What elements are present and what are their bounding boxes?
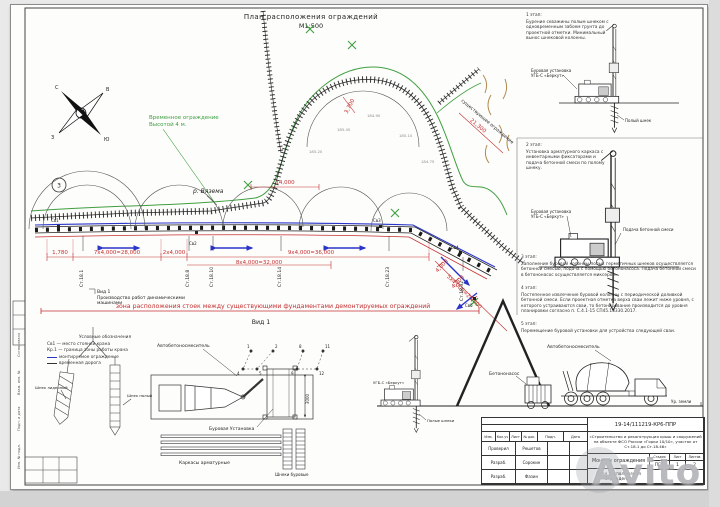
temp-fence-note-line1: Временное ограждение <box>149 115 219 121</box>
compass-north-label: С <box>55 85 59 91</box>
callout-number: 3 <box>57 183 61 190</box>
black-line-symbol <box>47 363 57 364</box>
station-label: Ст.18.32 <box>459 281 465 301</box>
station-label: Ст.18.1 <box>79 270 85 287</box>
compass-west-label: З <box>51 135 54 141</box>
river-label: р. Вязема <box>192 188 224 195</box>
compass-south-label: Ю <box>104 137 110 143</box>
tb-role-1: Проверил <box>482 442 516 456</box>
tb-role-3: Разраб. <box>482 470 516 484</box>
pump-label: Бетононасос <box>489 371 520 377</box>
mixer-rig-plan-detail: 3000 Автобетоносмеситель Буровая Установ… <box>151 343 331 432</box>
legend-item-temp-road: временная дорога <box>59 361 101 367</box>
rebar-and-augers-stock: Каркасы арматурные Шнеки буровые <box>161 429 309 477</box>
dim-label: 7х4,000=28,000 <box>94 250 141 256</box>
dimension-labels: 1,780 7х4,000=28,000 2х4,000 8х4,000=32,… <box>52 98 487 311</box>
margin-label-podp: Подп. и дата <box>17 407 21 431</box>
seq-number: 8 <box>299 344 302 349</box>
tb-name-1: Решетов <box>516 442 548 456</box>
lead-auger-label: Шнек лидерный <box>35 385 68 390</box>
tb-col-dok: № док. <box>522 432 538 442</box>
stage2-title: 2 этап: <box>526 143 606 149</box>
seq-number: 2 <box>275 344 278 349</box>
elevation-mark: 185.20 <box>309 149 323 154</box>
stage2-note: 2 этап: Установка арматурного каркаса с … <box>526 143 606 172</box>
stage1-note: 1 этап: Бурение скважины полым шнеком с … <box>526 13 610 42</box>
watermark-text: Avito <box>592 452 701 493</box>
hollow-augers-label: Полые шнеки <box>427 418 455 423</box>
dim-label: 1,780 <box>52 250 68 256</box>
stage5-title: 5 этап: <box>521 322 681 328</box>
mixer-side-label: Автобетоносмеситель <box>547 344 600 350</box>
elevation-mark: 185.45 <box>337 127 351 132</box>
station-label: Ст.18.8 <box>185 270 191 287</box>
blue-line-symbol <box>47 357 57 358</box>
stage4-note: 4 этап: Постепенное извлечение буровой к… <box>521 286 697 315</box>
ground-label: Ур. земли <box>671 399 692 404</box>
station-label: Ст.18.10 <box>209 267 215 287</box>
legend-title: Условные обозначения <box>47 335 163 341</box>
rig-label-line2: УГБ-С «Беркут» <box>531 73 564 78</box>
rig-side-label: УГБ-С «Беркут» <box>373 380 405 385</box>
crane-point-label: Св3 <box>373 218 381 223</box>
legend-row: временная дорога <box>47 361 163 367</box>
stage4-title: 4 этап: <box>521 286 697 292</box>
dim-label: 4,000 <box>435 258 450 274</box>
crane-reach-arcs <box>29 91 447 231</box>
crane-point-label: Св4 <box>451 245 459 250</box>
hollow-auger-label: Шнек полый <box>127 393 153 398</box>
zone-note: зона расположения стоек между существующ… <box>116 302 431 310</box>
elevation-mark: 184.90 <box>367 113 381 118</box>
temp-fence-note-line2: Высотой 4 м. <box>149 121 187 128</box>
station-label: Ст.18.14 <box>277 267 283 287</box>
crane-point-label: Св2 <box>189 241 197 246</box>
augers-label: Шнеки буровые <box>275 472 309 477</box>
station-label: Ст.18.23 <box>385 267 391 287</box>
crane-point-label: Св5 <box>465 303 473 308</box>
tb-col-koluch: Кол.уч <box>496 432 510 442</box>
compass-rose: С В З Ю <box>51 85 110 143</box>
stage5-text: Перемещение буровой установки для устрой… <box>521 329 681 335</box>
legend: Условные обозначения Св1 — место стоянки… <box>47 335 163 367</box>
auger-label: Полый шнек <box>625 118 652 123</box>
margin-label-inv: Инв. № подл. <box>17 444 21 469</box>
cages-label: Каркасы арматурные <box>179 460 230 466</box>
elevation-mark: 185.10 <box>399 133 413 138</box>
photo-bottom-edge <box>0 491 720 507</box>
stage2-text: Установка арматурного каркаса с инвентар… <box>526 150 606 172</box>
tb-doc-number: 19-14/111219-КР6-ППР <box>588 418 704 432</box>
stage3-note: 3 этап: Заполнение буровой колонны полых… <box>521 255 699 278</box>
seq-number: 11 <box>325 344 331 349</box>
dim-label: 2х4,000 <box>163 250 186 256</box>
stage3-text: Заполнение буровой колонны полых гермети… <box>521 262 699 279</box>
tb-col-podp: Подп. <box>538 432 564 442</box>
rig-width-dim: 3000 <box>305 393 310 404</box>
tb-col-list: Лист <box>510 432 522 442</box>
dim-label: 8х4,000=32,000 <box>236 260 283 266</box>
crane-point-label: Св1 <box>51 218 59 223</box>
tb-col-data: Дата <box>564 432 588 442</box>
seq-number: 12 <box>319 371 325 376</box>
spot-elevations: 185.20 185.45 184.90 185.10 184.75 <box>309 113 435 164</box>
tb-col-izm: Изм. <box>482 432 496 442</box>
margin-label-vzam: Взам. инв. № <box>17 371 21 395</box>
work-elevation: УГБ-С «Беркут» Полые шнеки Бетононасос <box>373 301 703 432</box>
dim-label: 14,000 <box>275 180 295 186</box>
elevation-mark: 184.75 <box>421 159 435 164</box>
tb-name-2: Сорокин <box>516 456 548 470</box>
stage1-title: 1 этап: <box>526 13 610 19</box>
photo-right-edge <box>709 0 720 507</box>
dim-label: 9х4,000=36,000 <box>288 250 335 256</box>
rig-plan-label: Буровая Установка <box>209 426 255 432</box>
view-ref: Вид 1 <box>97 289 111 295</box>
drawing-sheet: План расположения ограждений М1:500 <box>10 4 708 490</box>
tb-name-3: Фазин <box>516 470 548 484</box>
mixer-plan-label: Автобетоносмеситель <box>157 343 210 349</box>
stage5-note: 5 этап: Перемещение буровой установки дл… <box>521 322 681 334</box>
feed-label: Подача бетонной смеси <box>623 227 674 232</box>
stage1-text: Бурение скважины полым шнеком с одноврем… <box>526 20 610 42</box>
rig-label-line2: УГБ-С «Беркут» <box>531 214 564 219</box>
view-label: Вид 1 <box>252 319 271 326</box>
stage3-title: 3 этап: <box>521 255 699 261</box>
stage4-text: Постепенное извлечение буровой колонны с… <box>521 293 697 315</box>
view-note-line2: машинами <box>97 301 122 306</box>
tb-role-2: Разраб. <box>482 456 516 470</box>
margin-label-soglasovano: Согласовано <box>17 333 21 357</box>
seq-number: 1 <box>247 344 250 349</box>
compass-east-label: В <box>106 87 110 93</box>
